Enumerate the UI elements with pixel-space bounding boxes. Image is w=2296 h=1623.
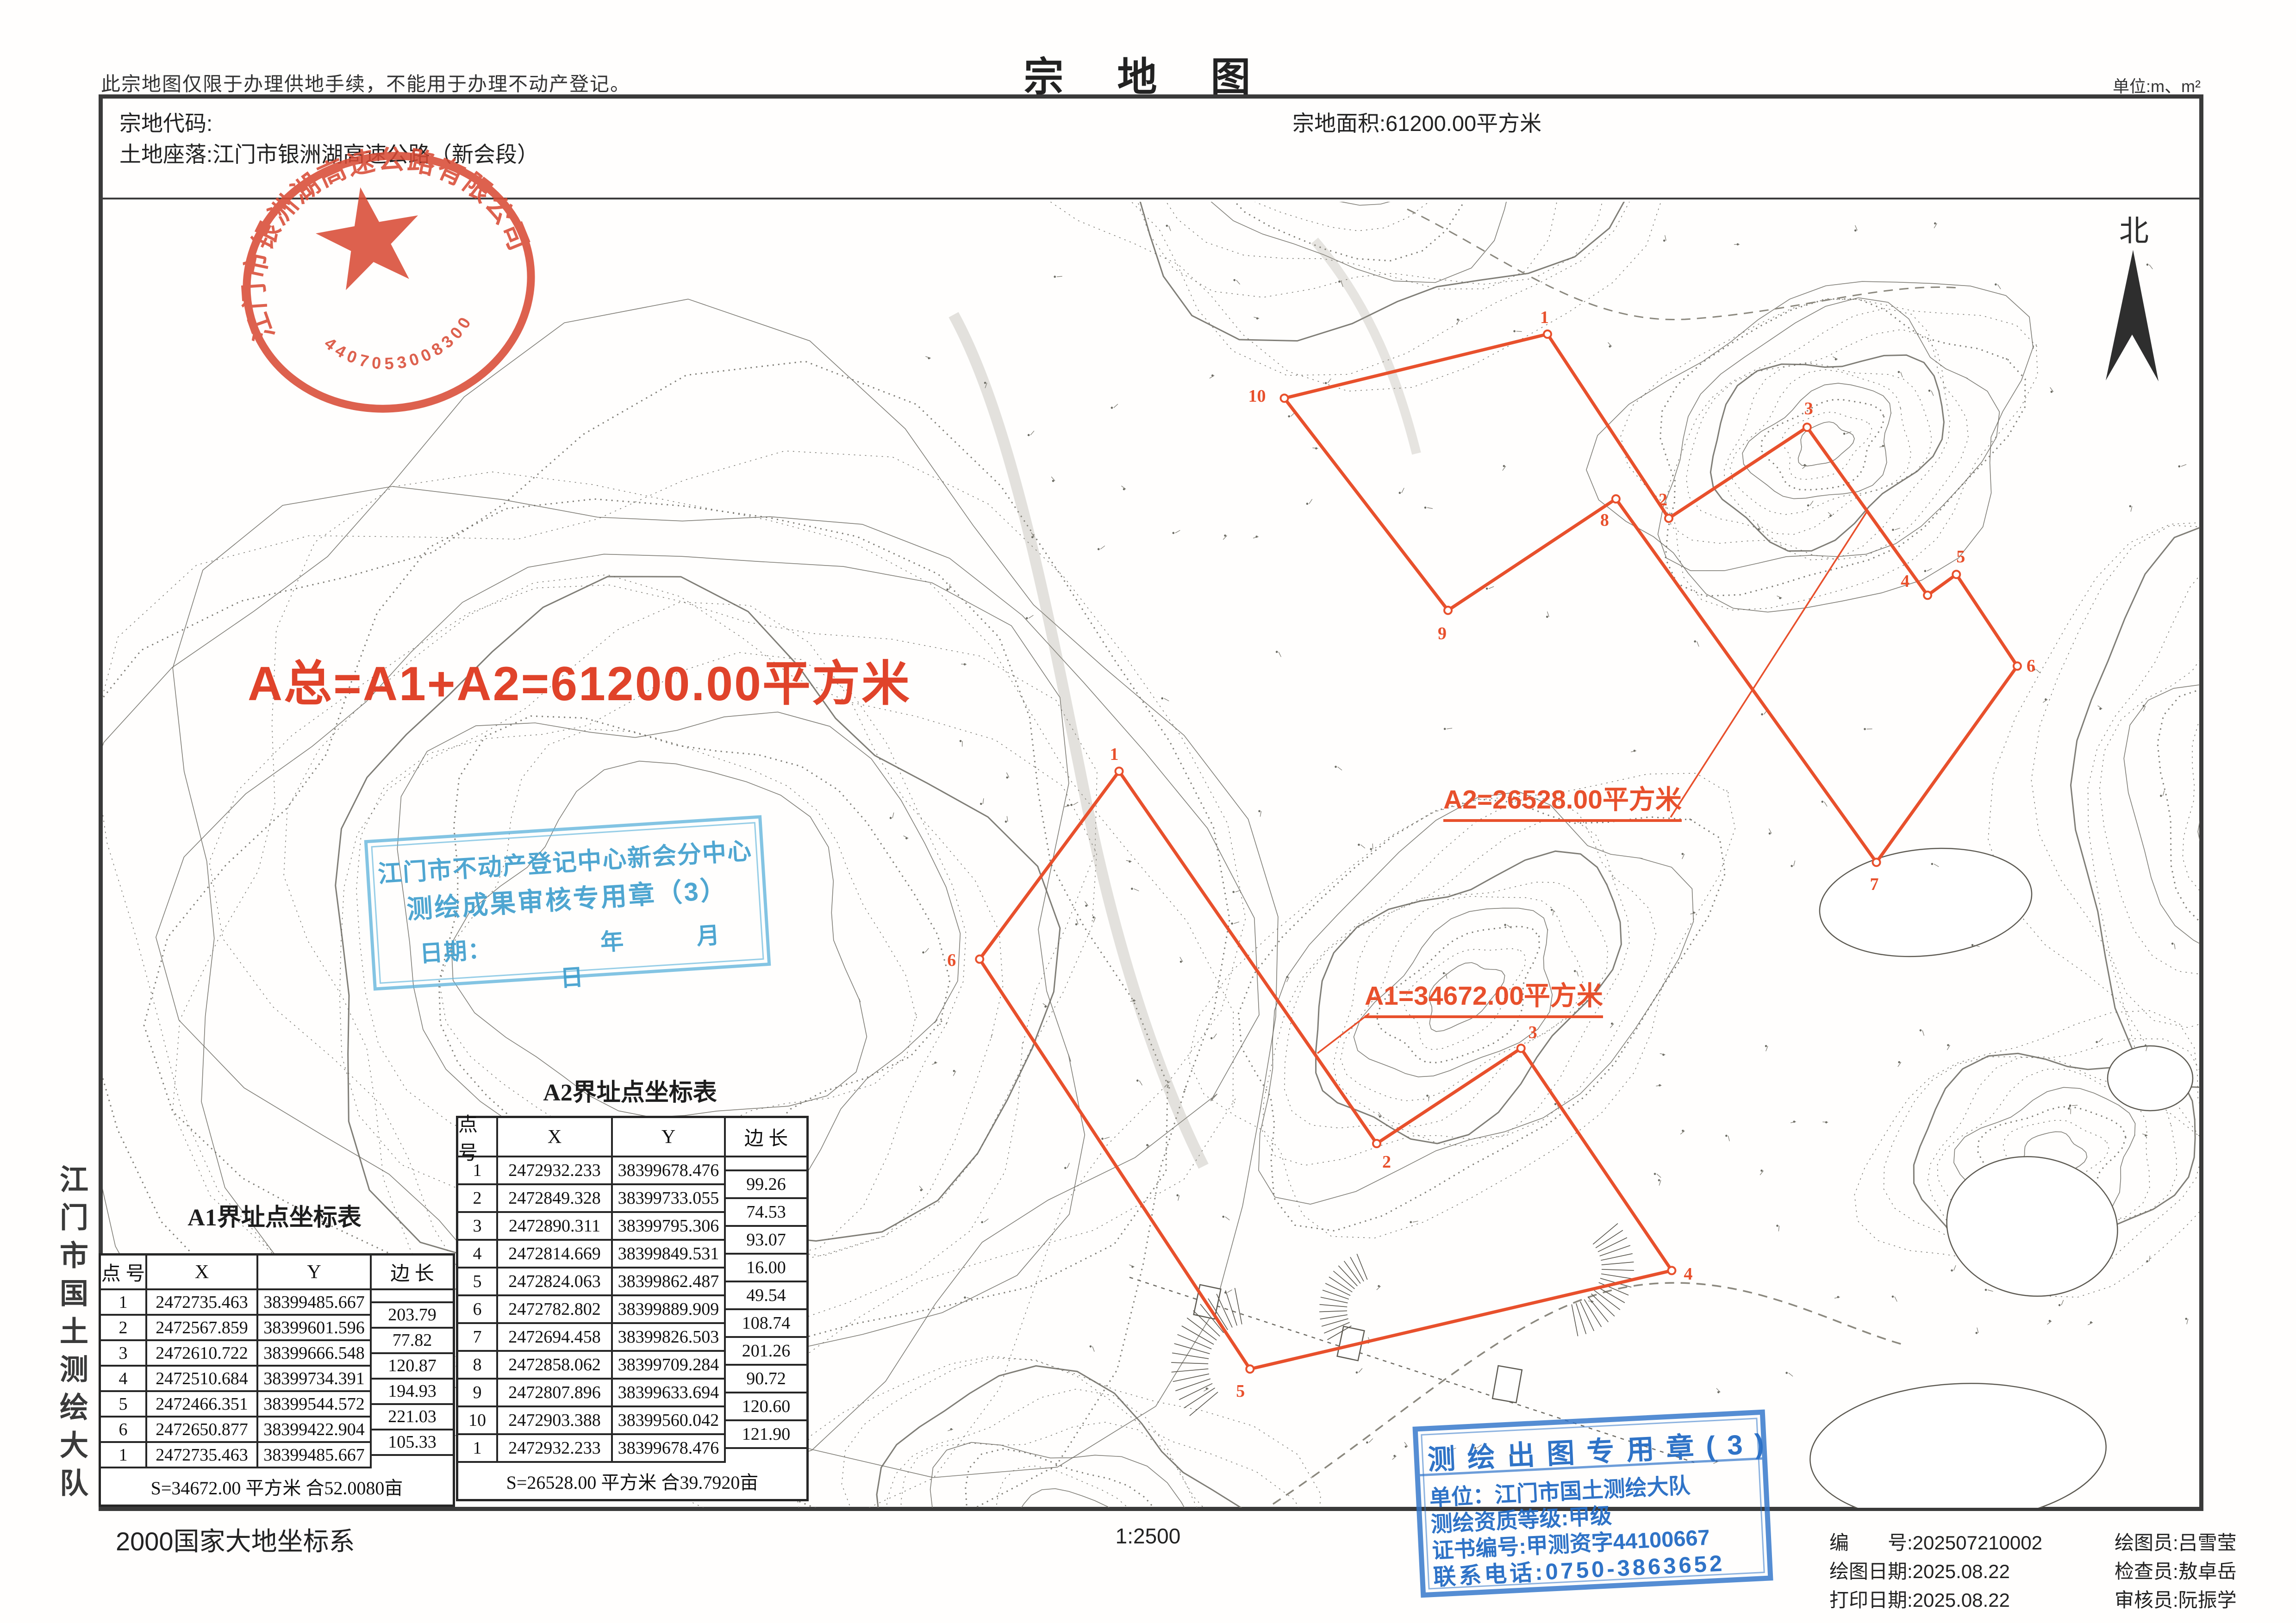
- spot-mark: [1864, 728, 1866, 730]
- spot-tick: [1657, 1174, 1661, 1178]
- spot-tick: [1114, 404, 1118, 408]
- spot-tick: [1169, 226, 1171, 231]
- a2-vertex-number: 7: [1870, 874, 1879, 895]
- slope-hatch-line: [1319, 1311, 1347, 1312]
- spot-tick: [1516, 331, 1522, 332]
- drafter-label: 绘图员:: [2115, 1532, 2178, 1554]
- spot-mark: [1286, 976, 1288, 978]
- table-cell: 9: [458, 1380, 498, 1407]
- spot-mark: [2059, 1304, 2061, 1306]
- table-cell: 194.93: [372, 1380, 453, 1405]
- a1-vertex-number: 5: [1236, 1381, 1245, 1401]
- spot-mark: [1379, 1115, 1381, 1118]
- spot-tick: [1139, 1081, 1142, 1085]
- spot-tick: [1988, 1290, 1993, 1291]
- spot-tick: [1227, 1290, 1232, 1293]
- table-cell: 38399862.487: [613, 1269, 726, 1296]
- spot-tick: [1234, 922, 1239, 924]
- table-cell: 38399633.694: [613, 1380, 726, 1407]
- table-cell: 点 号: [458, 1118, 498, 1157]
- table-cell: X: [498, 1118, 613, 1157]
- a1-vertex-marker: [1246, 1365, 1254, 1373]
- spot-tick: [2187, 1319, 2188, 1325]
- spot-mark: [1180, 961, 1182, 963]
- spot-mark: [1972, 944, 1974, 946]
- table-cell: 2472903.388: [498, 1407, 613, 1435]
- slope-hatch-line: [1598, 1237, 1627, 1252]
- table-cell: 2472890.311: [498, 1213, 613, 1241]
- contour-line: [877, 1366, 1284, 1623]
- spot-mark: [922, 951, 924, 954]
- contour-line: [2031, 525, 2296, 1138]
- spot-mark: [1934, 222, 1936, 224]
- spot-mark: [1101, 1138, 1104, 1140]
- slope-hatch-line: [1321, 1297, 1348, 1303]
- spot-mark: [1694, 640, 1696, 643]
- sheet-number-row: 编 号:202507210002: [1829, 1527, 2042, 1555]
- spot-tick: [1794, 861, 1795, 866]
- spot-mark: [920, 1189, 923, 1191]
- spot-mark: [2069, 1105, 2071, 1107]
- table-cell: Y: [613, 1118, 726, 1157]
- spot-tick: [1236, 280, 1240, 284]
- table-cell: 201.26: [726, 1338, 806, 1366]
- a2-vertex-marker: [1953, 571, 1960, 578]
- spot-tick: [1402, 488, 1404, 493]
- table-cell: 6: [458, 1296, 498, 1324]
- slope-hatch-line: [1602, 1262, 1634, 1265]
- sheet-number-label: 编 号:: [1829, 1532, 1913, 1554]
- spot-mark: [1111, 407, 1113, 409]
- spot-tick: [2131, 506, 2132, 512]
- slope-hatch-line: [1350, 1257, 1364, 1281]
- spot-mark: [1995, 283, 1997, 286]
- a2-table-title: A2界址点坐标表: [456, 1073, 804, 1107]
- label-leader-line: [1671, 511, 1867, 817]
- spot-mark: [2129, 505, 2132, 508]
- spot-mark: [1085, 905, 1087, 907]
- spot-mark: [1210, 1037, 1213, 1039]
- a2-vertex-number: 5: [1956, 547, 1965, 567]
- contour-line: [1224, 4, 1533, 231]
- table-cell: 38399889.909: [613, 1296, 726, 1324]
- slope-hatch-line: [1601, 1274, 1633, 1279]
- table-cell: 2472782.802: [498, 1296, 613, 1324]
- spot-mark: [1426, 1094, 1429, 1097]
- table-cell: 38399485.667: [258, 1443, 372, 1468]
- spot-mark: [1920, 1029, 1922, 1032]
- table-cell: 2472932.233: [498, 1435, 613, 1463]
- a2-vertex-number: 1: [1540, 307, 1549, 328]
- spot-mark: [1725, 1135, 1728, 1137]
- spot-mark: [1075, 923, 1078, 926]
- contour-line: [901, 1422, 1219, 1623]
- table-cell: 2: [458, 1185, 498, 1213]
- spot-mark: [1785, 1372, 1788, 1374]
- spot-mark: [1399, 492, 1401, 494]
- spot-mark: [1335, 766, 1337, 768]
- parcel-map-sheet: 此宗地图仅限于办理供地手续，不能用于办理不动产登记。 宗 地 图 单位:m、m²…: [0, 0, 2296, 1623]
- table-cell: 93.07: [726, 1227, 806, 1255]
- spot-tick: [1360, 845, 1365, 848]
- reviewer-row: 审核员:阮振学: [2115, 1585, 2237, 1613]
- spot-mark: [2160, 795, 2162, 797]
- table-cell: [726, 1449, 806, 1463]
- spot-mark: [1761, 713, 1763, 715]
- spot-mark: [1092, 916, 1095, 919]
- table-footer: S=34672.00 平方米 合52.0080亩: [101, 1468, 453, 1505]
- spot-tick: [962, 741, 963, 746]
- table-footer: S=26528.00 平方米 合39.7920亩: [458, 1463, 806, 1499]
- table-cell: 38399666.548: [258, 1341, 372, 1367]
- table-cell: 38399601.596: [258, 1316, 372, 1341]
- spot-mark: [2096, 1041, 2098, 1043]
- table-cell: 10: [458, 1407, 498, 1435]
- contour-line: [2100, 586, 2296, 1010]
- spot-tick: [1895, 1297, 1897, 1302]
- contour-line: [2088, 543, 2296, 1027]
- spot-mark: [1976, 1332, 1978, 1334]
- spot-mark: [1146, 1144, 1148, 1146]
- total-area-text: A总=A1+A2=61200.00平方米: [248, 644, 911, 714]
- print-date-label: 打印日期:: [1829, 1589, 1913, 1611]
- a1-coordinate-table: 点 号XY边 长12472735.46338399485.66722472567…: [99, 1253, 455, 1507]
- table-cell: 2472814.669: [498, 1241, 613, 1269]
- spot-tick: [2149, 1256, 2150, 1262]
- contour-line: [1666, 308, 1968, 560]
- spot-mark: [1898, 1061, 1900, 1063]
- table-cell: 2472735.463: [147, 1443, 258, 1468]
- spot-tick: [1553, 910, 1554, 915]
- spot-mark: [1609, 345, 1611, 348]
- slope-hatch-line: [1175, 1379, 1210, 1391]
- spot-tick: [925, 948, 929, 952]
- spot-mark: [1288, 415, 1290, 417]
- table-cell: 2472694.458: [498, 1324, 613, 1352]
- a2-vertex-marker: [1444, 607, 1452, 614]
- slope-hatch-line: [1329, 1277, 1352, 1292]
- label-leader-line: [1317, 1014, 1369, 1053]
- table-cell: 120.87: [372, 1354, 453, 1380]
- reviewer-value: 阮振学: [2178, 1589, 2237, 1611]
- spot-tick: [1447, 728, 1452, 729]
- spot-mark: [1574, 970, 1576, 972]
- table-cell: 38399678.476: [613, 1435, 726, 1463]
- a2-vertex-marker: [1544, 330, 1551, 338]
- table-cell: 90.72: [726, 1366, 806, 1393]
- table-cell: 221.03: [372, 1405, 453, 1430]
- spot-mark: [890, 817, 892, 819]
- north-arrow-icon: [2106, 250, 2159, 381]
- table-cell: 120.60: [726, 1393, 806, 1421]
- table-cell: 5: [458, 1269, 498, 1296]
- spot-mark: [1898, 371, 1900, 373]
- spot-mark: [1503, 465, 1505, 467]
- table-cell: 1: [101, 1290, 147, 1316]
- slope-hatch-line: [1179, 1383, 1212, 1399]
- spot-mark: [1486, 588, 1488, 590]
- table-cell: 2472650.877: [147, 1418, 258, 1443]
- spot-tick: [1235, 890, 1241, 892]
- a1-vertex-marker: [1373, 1140, 1380, 1147]
- a1-vertex-marker: [1116, 767, 1123, 775]
- contour-line: [2124, 640, 2296, 994]
- spot-tick: [1728, 1136, 1729, 1141]
- contour-line: [2183, 705, 2296, 918]
- slope-hatch-line: [1600, 1245, 1630, 1256]
- spot-tick: [1067, 1163, 1069, 1168]
- contour-line: [1586, 281, 2034, 612]
- spot-mark: [1276, 651, 1278, 653]
- spot-mark: [2171, 943, 2174, 945]
- ponds: [1807, 839, 2193, 1530]
- spot-mark: [1405, 1446, 1407, 1448]
- draw-date-row: 绘图日期:2025.08.22: [1829, 1556, 2010, 1584]
- spot-tick: [1895, 528, 1900, 530]
- spot-mark: [2068, 1107, 2070, 1110]
- spot-mark: [1843, 433, 1846, 435]
- spot-tick: [1279, 652, 1281, 657]
- spot-mark: [1924, 570, 1927, 572]
- spot-tick: [983, 798, 984, 804]
- slope-hatch-line: [1596, 1230, 1623, 1248]
- a2-vertex-marker: [1873, 858, 1880, 866]
- spot-tick: [2163, 790, 2164, 796]
- spot-mark: [1173, 532, 1175, 534]
- spot-tick: [2149, 265, 2152, 269]
- spot-tick: [1338, 767, 1342, 770]
- spot-mark: [1338, 280, 1341, 283]
- spot-mark: [2143, 705, 2145, 707]
- a1-vertex-number: 4: [1684, 1264, 1692, 1284]
- spot-tick: [1175, 530, 1180, 533]
- spot-mark: [980, 803, 982, 805]
- spot-mark: [1682, 853, 1684, 855]
- a1-boundary: [980, 771, 1672, 1369]
- spot-tick: [1092, 1346, 1094, 1351]
- checker-value: 敖卓岳: [2178, 1561, 2237, 1582]
- spot-mark: [1233, 279, 1235, 281]
- table-cell: 边 长: [372, 1256, 453, 1290]
- spot-mark: [1611, 1023, 1613, 1025]
- spot-mark: [1444, 728, 1446, 730]
- table-cell: 99.26: [726, 1171, 806, 1199]
- contour-line: [1195, 0, 1558, 261]
- spot-mark: [1028, 434, 1030, 436]
- spot-mark: [960, 740, 962, 742]
- spot-tick: [1901, 372, 1903, 377]
- spot-mark: [1358, 844, 1360, 846]
- spot-mark: [1306, 503, 1309, 505]
- table-cell: 38399485.667: [258, 1290, 372, 1316]
- spot-mark: [1098, 548, 1100, 550]
- table-cell: 2472849.328: [498, 1185, 613, 1213]
- spot-mark: [1410, 1221, 1412, 1223]
- spot-mark: [1776, 1225, 1778, 1227]
- table-cell: 2472807.896: [498, 1380, 613, 1407]
- table-cell: 2472567.859: [147, 1316, 258, 1341]
- spot-mark: [1231, 922, 1233, 925]
- slope-hatch-line: [1325, 1283, 1350, 1295]
- drafter-row: 绘图员:吕雪莹: [2115, 1527, 2237, 1555]
- table-cell: 点 号: [101, 1256, 147, 1290]
- spot-mark: [2178, 465, 2181, 467]
- table-cell: 74.53: [726, 1199, 806, 1227]
- contour-line: [1118, 0, 1613, 297]
- spot-tick: [1489, 586, 1494, 589]
- a2-vertex-marker: [1665, 515, 1672, 522]
- a1-vertex-number: 6: [947, 950, 956, 970]
- spot-mark: [1658, 1179, 1660, 1181]
- table-cell: 1: [458, 1435, 498, 1463]
- parcel-boundaries: [976, 330, 2021, 1373]
- contour-line: [1658, 298, 2000, 571]
- spot-mark: [2051, 391, 2053, 393]
- table-cell: 2472735.463: [147, 1290, 258, 1316]
- slope-hatch-line: [1235, 1288, 1242, 1325]
- slope-hatch-line: [1171, 1362, 1208, 1364]
- spot-mark: [1554, 1103, 1557, 1105]
- spot-tick: [1309, 499, 1312, 504]
- spot-mark: [1026, 617, 1028, 620]
- slope-hatch-line: [1178, 1335, 1212, 1349]
- spot-mark: [1892, 1295, 1894, 1298]
- table-cell: 3: [458, 1213, 498, 1241]
- table-cell: 38399709.284: [613, 1352, 726, 1380]
- spot-mark: [1854, 230, 1857, 232]
- spot-tick: [1656, 1085, 1661, 1086]
- table-cell: 3: [101, 1341, 147, 1367]
- spot-tick: [2072, 1105, 2078, 1106]
- a2-vertex-marker: [2014, 662, 2021, 670]
- spot-mark: [981, 1221, 983, 1224]
- spot-tick: [949, 584, 950, 590]
- spot-mark: [1370, 848, 1372, 850]
- spot-mark: [1951, 1269, 1953, 1272]
- checker-label: 检查员:: [2115, 1561, 2178, 1582]
- checker-row: 检查员:敖卓岳: [2115, 1556, 2237, 1584]
- table-cell: 2472466.351: [147, 1392, 258, 1418]
- table-cell: 38399678.476: [613, 1157, 726, 1185]
- spot-mark: [953, 1070, 955, 1072]
- table-cell: 77.82: [372, 1329, 453, 1354]
- a1-area-label: A1=34672.00平方米: [1365, 975, 1603, 1018]
- spot-tick: [1665, 235, 1666, 241]
- spot-mark: [1928, 390, 1931, 392]
- a2-vertex-number: 2: [1659, 490, 1667, 510]
- table-cell: 4: [101, 1367, 147, 1392]
- spot-mark: [2146, 264, 2149, 266]
- spot-mark: [2145, 1045, 2147, 1047]
- spot-mark: [1052, 480, 1054, 482]
- contour-line: [1233, 20, 1497, 205]
- slope-hatch-line: [1602, 1269, 1634, 1270]
- spot-tick: [1328, 379, 1331, 383]
- spot-tick: [1931, 391, 1934, 396]
- a2-area-label: A2=26528.00平方米: [1443, 778, 1682, 822]
- slope-hatch-line: [1174, 1343, 1210, 1354]
- spot-mark: [1031, 536, 1034, 538]
- spot-mark: [1760, 1169, 1763, 1172]
- spot-tick: [1007, 816, 1008, 822]
- spot-mark: [1822, 801, 1824, 803]
- slope-hatch-line: [1172, 1353, 1209, 1359]
- spot-mark: [1222, 1216, 1224, 1218]
- slope-hatch-line: [1322, 1318, 1348, 1326]
- spot-tick: [1100, 546, 1105, 549]
- spot-mark: [1005, 821, 1007, 823]
- a2-vertex-marker: [1612, 495, 1620, 503]
- a1-vertex-marker: [1668, 1267, 1675, 1274]
- a1-table-title: A1界址点坐标表: [99, 1198, 450, 1232]
- table-cell: 38399733.055: [613, 1185, 726, 1213]
- spot-mark: [1504, 924, 1506, 926]
- a2-vertex-marker: [1924, 591, 1931, 599]
- print-date-value: 2025.08.22: [1913, 1589, 2010, 1611]
- spot-tick: [1822, 1122, 1828, 1122]
- contour-line: [1153, 0, 1568, 282]
- spot-mark: [1546, 616, 1548, 618]
- table-cell: [372, 1290, 453, 1303]
- spot-tick: [2174, 944, 2175, 949]
- a2-vertex-marker: [1281, 394, 1288, 402]
- spot-mark: [1136, 1080, 1139, 1082]
- slope-hatch-line: [1584, 1300, 1601, 1327]
- table-cell: 1: [458, 1157, 498, 1185]
- spot-tick: [1057, 276, 1062, 277]
- table-cell: 2472510.684: [147, 1367, 258, 1392]
- spot-tick: [1427, 508, 1433, 509]
- spot-tick: [1954, 1265, 1956, 1270]
- spot-tick: [2181, 465, 2186, 466]
- contour-line: [1724, 363, 1932, 535]
- a2-vertex-number: 8: [1600, 510, 1609, 530]
- a2-vertex-number: 10: [1248, 386, 1266, 406]
- table-cell: Y: [258, 1256, 372, 1290]
- spot-mark: [1161, 697, 1163, 700]
- slope-hatch-line: [1593, 1224, 1618, 1244]
- table-cell: 2472610.722: [147, 1341, 258, 1367]
- draw-date-label: 绘图日期:: [1829, 1561, 1913, 1582]
- spot-mark: [1070, 804, 1073, 806]
- spot-mark: [1443, 972, 1445, 975]
- contour-line: [2198, 734, 2296, 882]
- spot-mark: [1356, 1371, 1358, 1374]
- slope-hatch-line: [1182, 1326, 1214, 1344]
- spot-tick: [1789, 1373, 1793, 1376]
- table-cell: X: [147, 1256, 258, 1290]
- spot-tick: [1922, 1030, 1924, 1035]
- spot-mark: [1807, 504, 1809, 507]
- spot-mark: [984, 382, 986, 384]
- table-cell: 38399544.572: [258, 1392, 372, 1418]
- spot-mark: [1551, 909, 1553, 911]
- a1-vertex-number: 2: [1382, 1152, 1391, 1172]
- slope-hatch-line: [1172, 1369, 1209, 1372]
- spot-mark: [1176, 1194, 1179, 1197]
- table-cell: 49.54: [726, 1282, 806, 1310]
- spot-mark: [1769, 833, 1771, 835]
- a1-vertex-marker: [976, 956, 983, 963]
- spot-tick: [1134, 889, 1139, 891]
- spot-mark: [1892, 529, 1894, 531]
- spot-mark: [1131, 888, 1133, 890]
- spot-mark: [1166, 225, 1168, 227]
- slope-hatch-line: [1572, 1305, 1578, 1337]
- table-cell: 2: [101, 1316, 147, 1341]
- spot-tick: [1824, 802, 1827, 806]
- table-cell: 2472824.063: [498, 1269, 613, 1296]
